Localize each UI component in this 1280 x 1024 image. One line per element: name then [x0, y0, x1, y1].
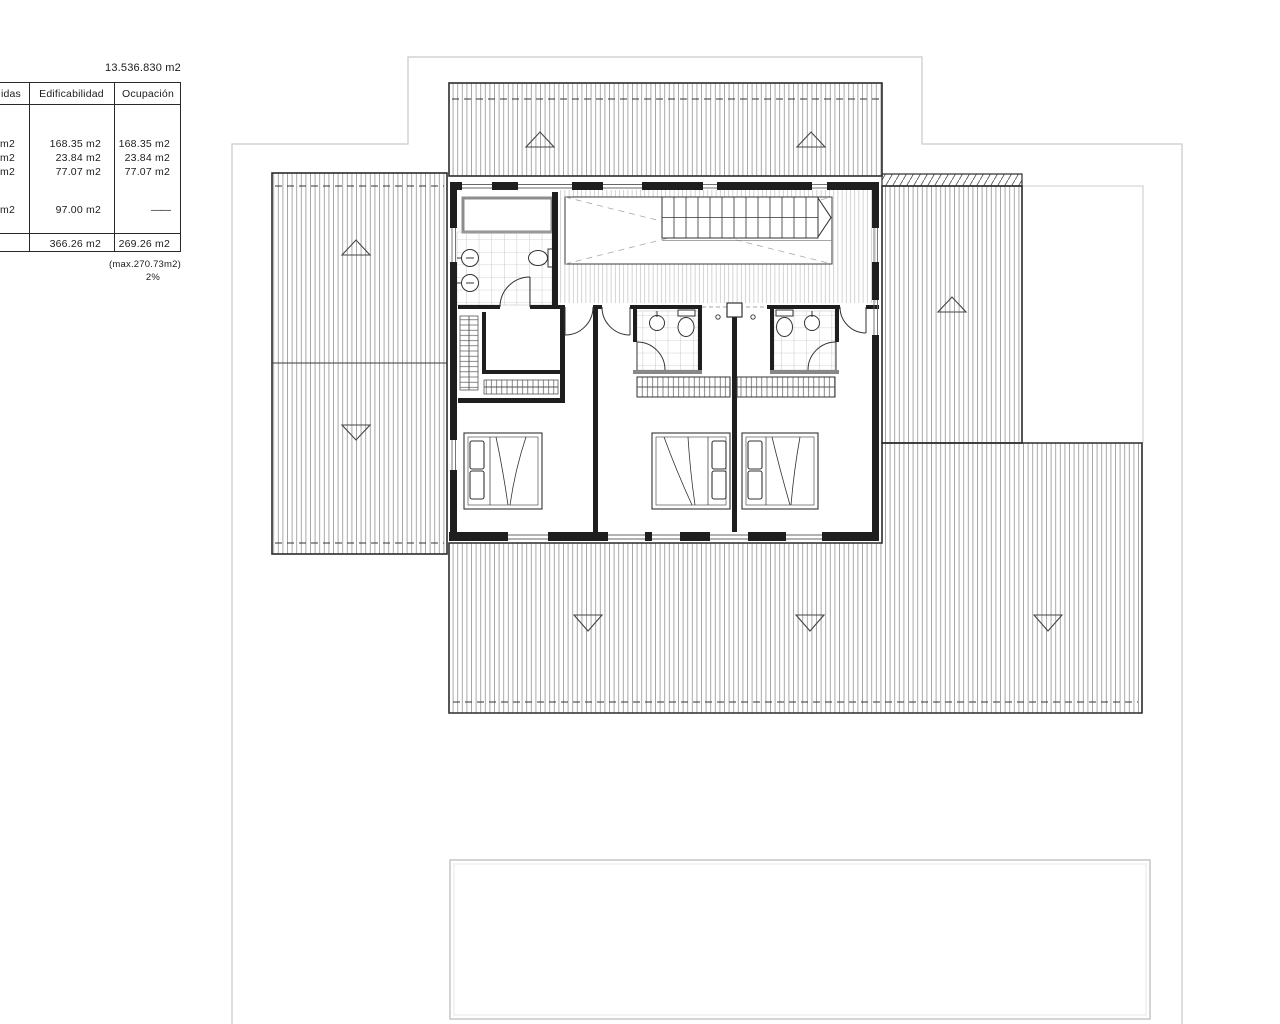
pillow — [470, 471, 484, 499]
pillow — [748, 471, 762, 499]
pillow — [712, 441, 726, 469]
drawing-sheet: 13.536.830 m2 idas Edificabilidad Ocupac… — [0, 0, 1280, 1024]
bed-2 — [652, 433, 730, 509]
table-cell: m2 — [0, 138, 21, 150]
table-cell: 168.35 m2 — [29, 138, 101, 150]
floor-plan-svg — [0, 0, 1280, 1024]
col-header-edificabilidad: Edificabilidad — [29, 88, 114, 100]
table-cell: —— — [114, 204, 170, 216]
main-bathroom — [457, 192, 558, 307]
table-cell: m2 — [0, 152, 21, 164]
roof-right-upper — [882, 186, 1022, 443]
sink — [650, 316, 665, 331]
total-ocupacion: 269.26 m2 — [114, 238, 170, 250]
pillow — [470, 441, 484, 469]
setback-boundary — [1022, 186, 1143, 443]
table-cell: 23.84 m2 — [114, 152, 170, 164]
total-edificabilidad: 366.26 m2 — [29, 238, 101, 250]
note-max: (max.270.73m2) — [30, 259, 181, 270]
pillow — [748, 441, 762, 469]
duct-box — [727, 303, 742, 317]
wall-bed1-bed2 — [593, 307, 598, 532]
bath-tile-floor — [457, 232, 552, 305]
sink — [805, 316, 820, 331]
table-cell: m2 — [0, 204, 21, 216]
toilet — [777, 318, 793, 337]
stairwell — [565, 197, 832, 264]
col-header-partial: idas — [0, 88, 21, 100]
note-percent: 2% — [30, 272, 160, 283]
table-cell: 97.00 m2 — [29, 204, 101, 216]
bathroom-2 — [770, 307, 839, 374]
roof-top — [449, 83, 882, 176]
wall-bed2-bed3 — [732, 317, 737, 532]
site-total-area: 13.536.830 m2 — [30, 62, 181, 74]
pool-outline — [450, 860, 1150, 1019]
toilet-tank — [678, 310, 695, 316]
table-cell: 23.84 m2 — [29, 152, 101, 164]
stairs — [662, 197, 832, 241]
pillow — [712, 471, 726, 499]
table-cell: 77.07 m2 — [114, 166, 170, 178]
table-cell: m2 — [0, 166, 21, 178]
bed-3 — [742, 433, 818, 509]
toilet — [529, 251, 548, 266]
bath-east-wall — [552, 192, 558, 305]
areas-table: idas Edificabilidad Ocupación m2 168.35 … — [0, 82, 181, 252]
bathroom-1 — [633, 307, 702, 374]
table-cell: 168.35 m2 — [114, 138, 170, 150]
table-cell: 77.07 m2 — [29, 166, 101, 178]
bed-1 — [464, 433, 542, 509]
col-header-ocupacion: Ocupación — [114, 88, 182, 100]
bath-counter — [463, 198, 552, 232]
toilet-tank — [776, 310, 793, 316]
roof-ridge-strip — [882, 174, 1022, 186]
toilet — [678, 318, 694, 337]
